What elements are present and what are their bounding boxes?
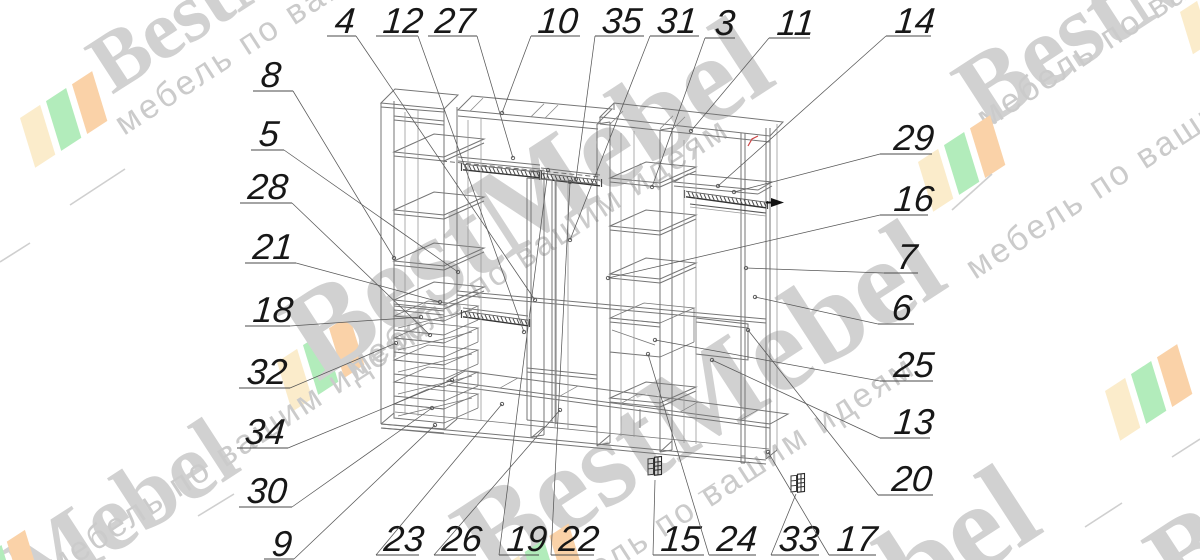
svg-text:3: 3 <box>713 2 737 43</box>
svg-text:19: 19 <box>505 518 549 559</box>
svg-text:11: 11 <box>775 2 816 43</box>
svg-text:20: 20 <box>889 458 934 499</box>
svg-text:23: 23 <box>381 518 426 559</box>
svg-text:16: 16 <box>892 178 937 219</box>
svg-text:4: 4 <box>333 0 357 41</box>
svg-text:30: 30 <box>245 470 289 511</box>
svg-text:29: 29 <box>891 117 936 158</box>
svg-text:15: 15 <box>659 518 704 559</box>
svg-text:18: 18 <box>251 289 295 330</box>
svg-text:9: 9 <box>270 523 294 560</box>
svg-text:34: 34 <box>243 411 287 452</box>
svg-text:26: 26 <box>439 518 485 559</box>
svg-text:12: 12 <box>381 0 425 41</box>
svg-text:31: 31 <box>655 0 699 41</box>
svg-text:17: 17 <box>835 518 881 559</box>
svg-text:24: 24 <box>714 518 759 559</box>
svg-text:14: 14 <box>893 0 937 41</box>
svg-text:22: 22 <box>556 518 601 559</box>
svg-text:25: 25 <box>891 344 937 385</box>
svg-text:8: 8 <box>259 54 283 95</box>
svg-text:35: 35 <box>600 0 645 41</box>
svg-text:32: 32 <box>245 351 289 392</box>
svg-text:21: 21 <box>250 226 295 267</box>
svg-text:10: 10 <box>536 0 580 41</box>
svg-text:28: 28 <box>245 166 290 207</box>
svg-text:27: 27 <box>432 0 479 41</box>
svg-text:13: 13 <box>892 401 936 442</box>
